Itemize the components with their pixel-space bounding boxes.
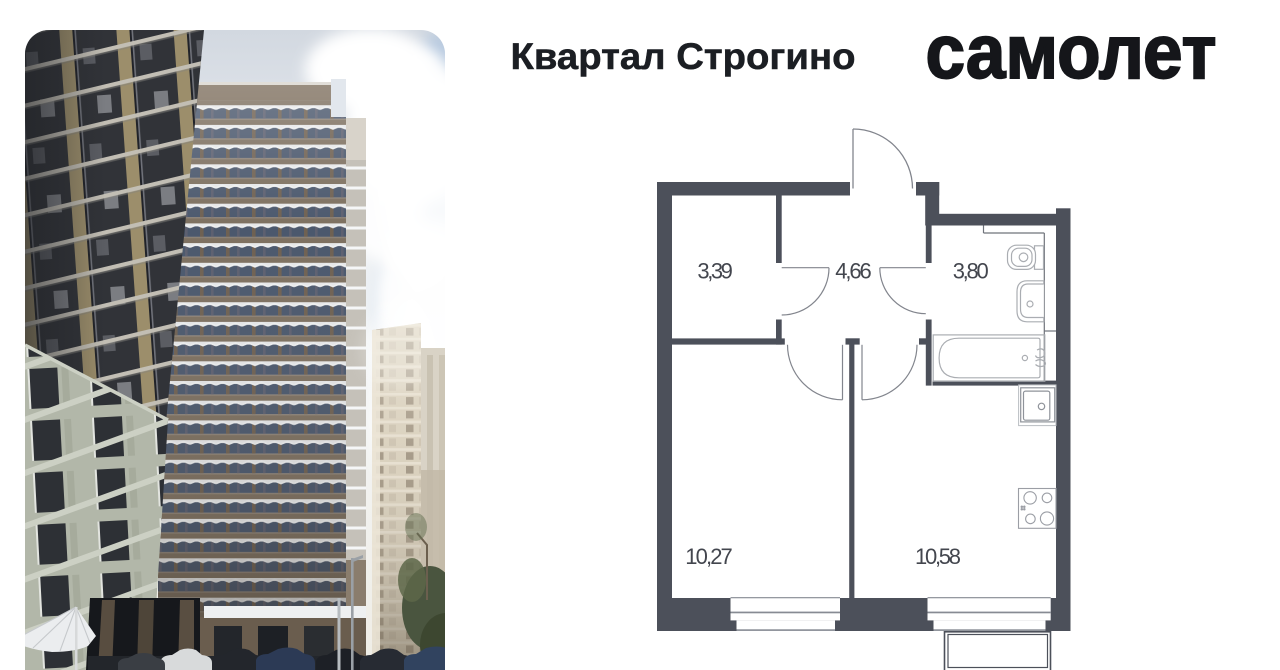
svg-text:самолет: самолет [926, 10, 1217, 95]
svg-text:10,27: 10,27 [685, 544, 733, 569]
svg-text:3,39: 3,39 [697, 258, 733, 283]
svg-text:3,80: 3,80 [953, 258, 989, 283]
svg-text:10,58: 10,58 [915, 544, 961, 569]
svg-text:4,66: 4,66 [835, 258, 872, 283]
svg-text:Квартал Строгино: Квартал Строгино [511, 36, 856, 77]
